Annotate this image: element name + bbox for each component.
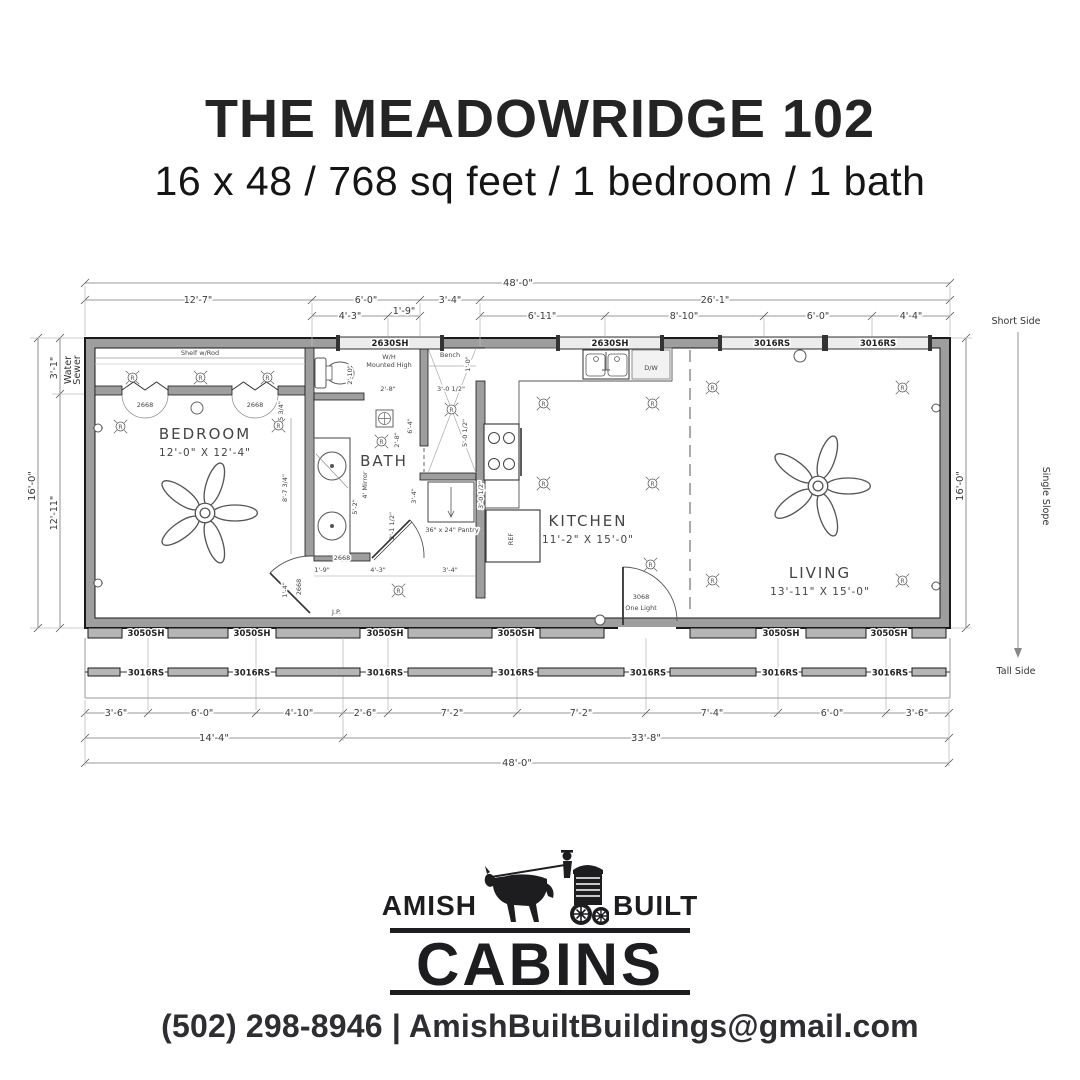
window-label: 3016RS: [367, 669, 403, 679]
dim-label: 4'-3": [370, 566, 385, 574]
kitchen-sink-icon: [583, 350, 629, 379]
horse-wagon-logo-icon: [481, 848, 609, 934]
dim-label: 6'-4": [406, 418, 414, 433]
dim-label: 7'-2": [570, 708, 593, 719]
door-label: 2668: [295, 579, 303, 596]
dim-label: 5'-2": [351, 499, 359, 514]
dishwasher-label: D/W: [644, 364, 658, 372]
refrigerator-icon: REF: [486, 510, 540, 562]
bedroom-label: BEDROOM: [159, 425, 251, 443]
window-label: 3016RS: [498, 669, 534, 679]
window-label: 3050SH: [871, 629, 908, 639]
porch: 3016RS 3016RS 3016RS 3016RS 3016RS 3016R…: [85, 638, 950, 710]
dim-label: 16'-0": [955, 471, 966, 501]
window-label: 3050SH: [367, 629, 404, 639]
amish-built-cabins-logo: AMISH: [380, 848, 700, 995]
dim-label: 6'-0": [191, 708, 214, 719]
right-dimensions: 16'-0" Short Side Single Slope Tall Side: [951, 316, 1051, 677]
dim-label: 6'-11": [528, 311, 557, 322]
top-windows: 2630SH 2630SH 3016RS 3016RS: [336, 335, 932, 351]
dim-label: 1'-9": [314, 566, 329, 574]
roof-short-side-label: Short Side: [991, 316, 1040, 327]
page-title: THE MEADOWRIDGE 102: [0, 88, 1080, 150]
floor-plan: R: [0, 258, 1080, 788]
dim-label: 26'-1": [701, 295, 730, 306]
dim-label: 2'-10": [346, 365, 354, 385]
ceiling-light-icon: [794, 350, 806, 362]
mirror-note: 4' Mirror: [361, 471, 369, 498]
dim-label: 6'-0": [807, 311, 830, 322]
dim-label: 7'-2": [441, 708, 464, 719]
entry-door-sublabel: One Light: [625, 604, 657, 612]
dim-label: 6'-0": [355, 295, 378, 306]
dim-label: 3'-0 1/2": [477, 481, 485, 509]
window-label: 3050SH: [234, 629, 271, 639]
contact-info: (502) 298-8946 | AmishBuiltBuildings@gma…: [0, 1008, 1080, 1045]
dim-label: 14'-4": [199, 733, 229, 744]
dim-label: 16'-0": [27, 471, 38, 501]
dim-label: 4'-4": [900, 311, 923, 322]
dim-label: 48'-0": [502, 758, 532, 769]
dim-label: 3'-1": [49, 357, 60, 380]
window-label: 3016RS: [754, 339, 790, 349]
refrigerator-label: REF: [507, 533, 515, 546]
range-icon: [484, 424, 521, 480]
dim-label: 3'-4": [442, 566, 457, 574]
water-heater-note: W/H: [382, 353, 396, 361]
floor-plan-svg: R: [0, 258, 1080, 788]
bedroom-size: 12'-0" X 12'-4": [159, 447, 251, 459]
dim-label: 8'-7 3/4": [281, 474, 289, 502]
pantry-note: 36" x 24" Pantry: [425, 526, 479, 534]
entry-door-opening: [618, 627, 676, 638]
ceiling-light-icon: [595, 615, 605, 625]
window-label: 2630SH: [592, 339, 629, 349]
door-label: 2668: [137, 401, 154, 409]
dim-label: 2'-6": [354, 708, 377, 719]
dim-label: 3'-4": [439, 295, 462, 306]
window-label: 3016RS: [128, 669, 164, 679]
dim-label: 8'-10": [670, 311, 699, 322]
vanity-sink-icon: [314, 438, 350, 556]
kitchen-size: 11'-2" X 15'-0": [542, 534, 634, 546]
dim-label: 33'-8": [631, 733, 661, 744]
dim-label: 12'-11": [49, 496, 60, 531]
roof-tall-side-label: Tall Side: [996, 666, 1036, 677]
shelf-note: Shelf w/Rod: [181, 349, 219, 357]
window-label: 3016RS: [762, 669, 798, 679]
dim-label: 2'-8": [393, 432, 401, 447]
kitchen-label: KITCHEN: [549, 512, 628, 530]
left-dimensions: 16'-0" 3'-1" 12'-11" Water Sewer: [27, 334, 84, 632]
water-heater-note: Mounted High: [366, 361, 412, 369]
dim-label: 1'-4": [281, 582, 289, 597]
window-label: 3050SH: [763, 629, 800, 639]
dim-label: 4'-3": [339, 311, 362, 322]
bath-label: BATH: [360, 452, 408, 470]
living-label: LIVING: [789, 564, 851, 582]
bottom-dimensions: 3'-6" 6'-0" 4'-10" 2'-6" 7'-2" 7'-2" 7'-…: [81, 700, 953, 769]
recessed-light-icon: [392, 584, 406, 598]
dim-label: 7'-4": [701, 708, 724, 719]
entry-door-label: 3068: [633, 593, 650, 601]
dim-label: 5'-0 1/2": [461, 419, 469, 447]
window-label: 3050SH: [498, 629, 535, 639]
dim-label: 5 3/4": [277, 401, 285, 421]
dim-label: 3'-6": [105, 708, 128, 719]
recessed-light-icon: [375, 435, 389, 449]
window-label: 2630SH: [372, 339, 409, 349]
dim-label: 3'-0 1/2": [437, 385, 465, 393]
dim-label: 3'-6": [906, 708, 929, 719]
bench-note: Bench: [440, 351, 460, 359]
exhaust-fan-icon: [376, 410, 393, 427]
dim-label: 12'-7": [184, 295, 213, 306]
door-label: 2668: [334, 554, 351, 562]
dim-label: 3'-4": [410, 488, 418, 503]
window-label: 3016RS: [630, 669, 666, 679]
dim-label: 6'-0": [821, 708, 844, 719]
bottom-windows: 3050SH 3050SH 3050SH 3050SH 3050SH 3050S…: [88, 628, 946, 639]
water-sewer-note: Sewer: [72, 355, 83, 384]
page-subtitle: 16 x 48 / 768 sq feet / 1 bedroom / 1 ba…: [0, 158, 1080, 205]
page: THE MEADOWRIDGE 102 16 x 48 / 768 sq fee…: [0, 0, 1080, 1080]
jp-note: J.P.: [331, 608, 341, 616]
dim-label: 4'-10": [285, 708, 314, 719]
logo-divider-bottom: [390, 990, 690, 995]
roof-slope-label: Single Slope: [1040, 467, 1051, 526]
living-size: 13'-11" X 15'-0": [770, 586, 870, 598]
window-label: 3016RS: [872, 669, 908, 679]
window-label: 3016RS: [234, 669, 270, 679]
dim-label: 2'-8": [380, 385, 395, 393]
logo-word-cabins: CABINS: [416, 933, 664, 996]
dim-label: 1'-9": [393, 306, 416, 317]
dim-label: 1'-0": [464, 356, 472, 371]
dim-label: 48'-0": [503, 278, 533, 289]
window-label: 3016RS: [860, 339, 896, 349]
window-label: 3050SH: [128, 629, 165, 639]
recessed-light-icon: [445, 403, 459, 417]
door-label: 2668: [247, 401, 264, 409]
ceiling-light-icon: [191, 402, 203, 414]
